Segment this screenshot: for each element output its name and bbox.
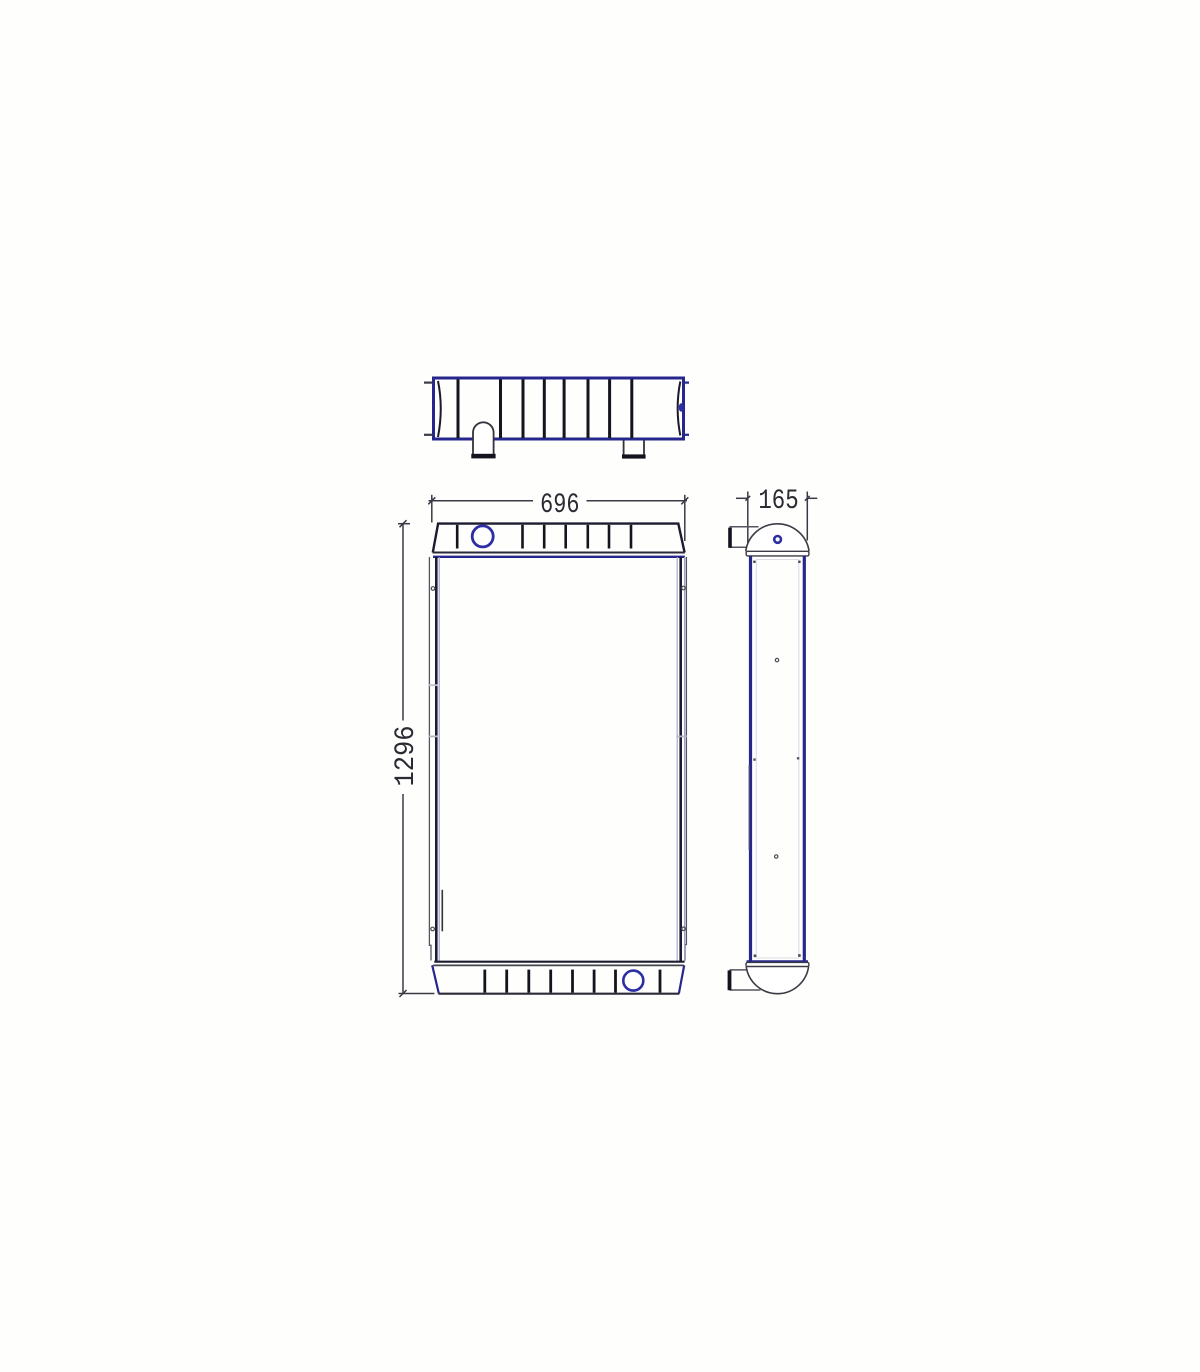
- svg-text:696: 696: [540, 488, 579, 520]
- svg-text:1296: 1296: [391, 725, 422, 786]
- svg-text:165: 165: [758, 485, 798, 517]
